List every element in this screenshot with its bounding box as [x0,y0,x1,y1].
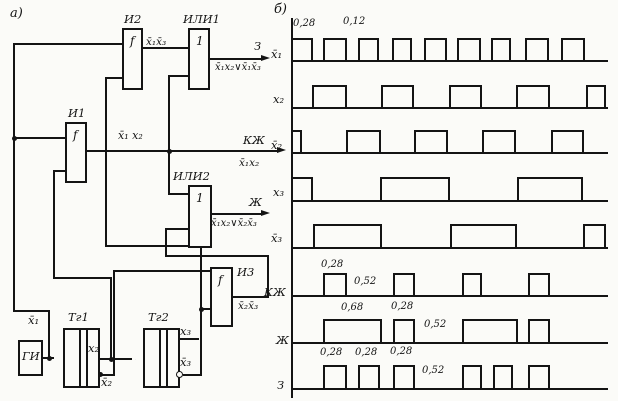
signal-pulse [392,38,412,62]
signal-pulse [449,85,482,109]
signal-pulse [393,273,415,297]
circuit-wire [53,277,112,279]
label-x1bar-gen: x̄₁ [28,314,39,326]
junction-dot [47,356,52,361]
label-yellow-out: Ж [249,196,262,208]
signal-pulse [313,224,382,249]
signal-pulse [312,85,347,109]
block-ili1: 1 [188,28,210,90]
signal-pulse [291,38,313,62]
signal-pulse [516,85,550,109]
junction-dot [167,149,172,154]
block-i3: f [210,267,233,327]
block-ili2: 1 [188,185,212,248]
block-symbol-i2: f [130,35,134,47]
signal-pulse [462,365,482,390]
label-x3bar-out: x̄₃ [180,356,191,368]
block-caption-tg1: Тг1 [68,311,89,323]
circuit-wire [13,43,124,45]
signal-pulse [358,38,379,62]
timing-annotation: 0,68 [341,303,363,313]
trigger-divider [166,330,168,386]
circuit-wire [168,75,170,152]
signal-pulse [393,365,415,390]
timing-annotation: 0,28 [293,19,315,29]
block-symbol-ili2: 1 [196,192,204,204]
figure-traffic-light-logic: а) б) ГИТг1Тг2fИ1fИ21ИЛИ11ИЛИ2fИ3x̄₁x₂x̄… [0,0,618,401]
signal-pulse [323,273,347,297]
signal-pulse [323,319,382,344]
block-caption-i1: И1 [68,107,85,119]
signal-pulse [528,365,550,390]
block-i2: f [122,28,143,90]
label-green-formula: x̄₁x₂∨x̄₁x̄₃ [215,62,261,74]
signal-pulse [525,38,549,62]
signal-pulse [561,38,585,62]
signal-pulse [393,319,415,344]
circuit-wire [168,150,170,195]
circuit-wire [110,277,112,360]
signal-pulse [291,130,302,154]
signal-label-1: x̄₁ [271,48,282,60]
circuit-wire [212,213,263,215]
signal-pulse [450,224,517,249]
trigger-divider [86,330,88,386]
circuit-wire [105,77,107,247]
signal-pulse [586,85,606,109]
signal-pulse [457,38,481,62]
signal-pulse [380,177,450,202]
circuit-wire [87,150,279,152]
timing-annotation: 0,28 [320,348,342,358]
junction-dot [12,136,17,141]
circuit-wire [168,75,190,77]
timing-annotation: 0,52 [422,366,444,376]
circuit-wire [165,255,269,257]
timing-annotation: 0,52 [354,277,376,287]
circuit-wire [48,310,50,359]
circuit-wire [53,170,55,279]
block-caption-gi: ГИ [22,350,40,362]
label-x2-out: x₂ [88,342,99,354]
circuit-wire [13,137,67,139]
block-caption-tg2: Тг2 [148,311,169,323]
signal-pulse [462,319,518,344]
block-caption-i2: И2 [124,13,141,25]
signal-pulse [482,130,516,154]
circuit-wire [210,58,263,60]
block-symbol-i3: f [218,274,222,286]
block-tg2 [143,328,180,388]
trigger-input-triangle [54,352,63,362]
timing-annotation: 0,28 [321,260,343,270]
signal-pulse [528,273,550,297]
trigger-divider [159,330,161,386]
junction-dot [98,372,103,377]
block-tg1 [63,328,100,388]
circuit-wire [113,270,212,272]
signal-pulse [323,365,347,390]
trigger-divider [79,330,81,386]
signal-pulse [493,365,513,390]
timing-annotation: 0,12 [343,17,365,27]
label-x3-out: x₃ [180,325,191,337]
circuit-wire [13,310,50,312]
green-output-arrow [261,55,270,61]
panel-a-label: а) [10,8,23,20]
label-and1-out: x̄₁ x₂ [118,130,143,142]
signal-pulse [462,273,482,297]
circuit-wire [13,43,15,312]
circuit-wire [100,358,136,360]
junction-dot [199,307,204,312]
signal-label-3: x̄₂ [271,139,282,151]
signal-pulse [517,177,583,202]
label-yellow-formula: x̄₁x₂∨x̄₂x̄₃ [211,218,257,230]
label-green-out: З [254,40,261,52]
signal-pulse [381,85,414,109]
signal-label-8: З [277,379,284,391]
signal-pulse [414,130,448,154]
yellow-output-arrow [261,210,270,216]
signal-pulse [491,38,511,62]
signal-pulse [424,38,447,62]
timing-annotation: 0,28 [391,302,413,312]
signal-label-5: x̄₃ [271,232,282,244]
label-redyellow-formula: x̄₁x₂ [239,157,259,169]
circuit-wire [165,228,190,230]
signal-pulse [346,130,381,154]
signal-label-2: x₂ [273,93,284,105]
label-redyellow-out: КЖ [243,134,265,146]
signal-pulse [551,130,584,154]
block-caption-ili1: ИЛИ1 [183,13,220,25]
signal-pulse [291,177,313,202]
timing-annotation: 0,52 [424,320,446,330]
panel-b-label: б) [274,4,287,16]
block-caption-i3: И3 [237,266,254,278]
signal-label-4: x₃ [273,186,284,198]
block-caption-ili2: ИЛИ2 [173,170,210,182]
circuit-wire [165,228,167,257]
signal-pulse [323,38,347,62]
timing-axis [291,18,293,398]
timing-annotation: 0,28 [355,348,377,358]
label-x2bar-out: x̄₂ [101,376,112,388]
label-and2-out: x̄₁x̄₃ [146,36,166,48]
label-and3-out: x̄₂x̄₃ [238,300,258,312]
junction-dot [109,357,114,362]
inverter-bubble [176,371,183,378]
circuit-wire [168,193,190,195]
circuit-wire [180,338,199,340]
timing-annotation: 0,28 [390,347,412,357]
block-symbol-i1: f [73,129,77,141]
signal-pulse [528,319,550,344]
block-i1: f [65,122,87,183]
block-symbol-ili1: 1 [196,35,204,47]
signal-label-6: КЖ [264,286,286,298]
signal-label-7: Ж [276,334,289,346]
signal-pulse [358,365,380,390]
signal-pulse [583,224,606,249]
trigger-input-triangle [132,352,141,362]
